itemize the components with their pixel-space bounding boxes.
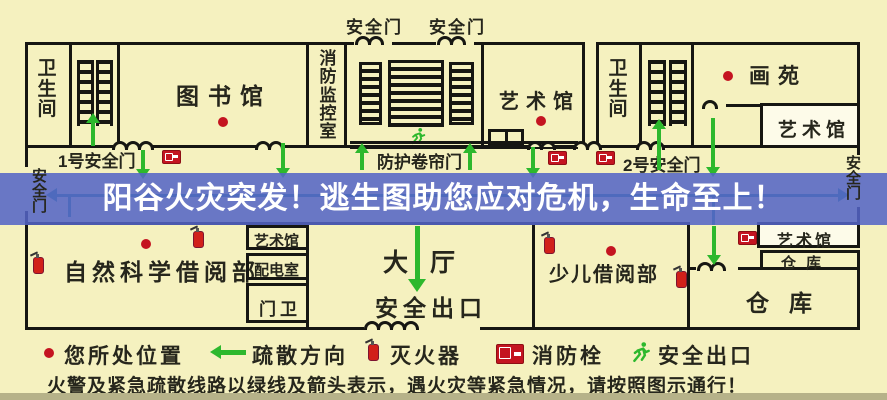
evac-arrow-up (91, 122, 95, 146)
room-label: 卫生间 (607, 59, 629, 121)
legend-label: 安全出口 (658, 340, 754, 370)
room-library: 图书馆 (117, 42, 309, 148)
west-exit-label: 安全门 (28, 168, 49, 213)
room-art-top: 艺术馆 (481, 42, 585, 148)
legend-row: 您所处位置 疏散方向 灭火器 消防栓 安全出口 (38, 340, 868, 366)
room-warehouse-big: 仓库 (687, 267, 860, 330)
evac-arrow-down (711, 118, 715, 168)
room-fire-monitor: 消防监控室 (306, 42, 347, 148)
fire-hydrant-icon (496, 344, 524, 364)
gate1-label: 1号安全门 (58, 147, 135, 172)
wall-segment (25, 145, 28, 167)
room-gate-guard: 门卫 (246, 283, 309, 323)
location-dot (723, 71, 733, 81)
room-label: 少儿借阅部 (549, 258, 659, 287)
fire-hydrant-icon (596, 151, 615, 165)
bookshelf (359, 62, 382, 125)
fire-hydrant-icon (548, 151, 567, 165)
headline-banner: 阳谷火灾突发！逃生图助您应对危机，生命至上！ (0, 173, 887, 225)
fire-hydrant-icon (162, 150, 181, 164)
running-man-icon (630, 341, 652, 363)
legend-label: 您所处位置 (64, 340, 184, 370)
bookshelf (388, 60, 444, 127)
main-exit-door (364, 321, 416, 330)
evac-arrow-down (712, 226, 716, 256)
stair-flight (648, 60, 666, 126)
evac-arrow-up (360, 152, 364, 170)
hall-exit-label: 安全出口 (375, 289, 487, 323)
bottom-strip (0, 393, 887, 400)
door-label: 安全门 (346, 13, 403, 38)
room-warehouse-small: 仓库 (760, 250, 860, 270)
evac-arrow-down (141, 150, 145, 170)
fire-extinguisher-icon (368, 344, 379, 361)
room-label: 仓库 (746, 284, 832, 318)
wall-segment (687, 222, 690, 270)
room-label: 艺术馆 (499, 85, 580, 114)
room-hall: 大厅 安全出口 (306, 222, 535, 330)
location-dot (536, 116, 546, 126)
corridor-door (255, 141, 281, 150)
fire-extinguisher-icon (193, 231, 204, 248)
room-label: 卫生间 (36, 59, 58, 121)
location-dot (218, 117, 228, 127)
room-label: 艺术馆 (254, 230, 299, 251)
evac-arrow-down (531, 147, 535, 169)
evac-arrow-up (468, 152, 472, 170)
door-label: 安全门 (429, 13, 486, 38)
legend-label: 消防栓 (532, 340, 604, 370)
room-label: 门卫 (259, 295, 301, 320)
room-label: 消防监控室 (317, 50, 339, 142)
fire-extinguisher-icon (544, 237, 555, 254)
evac-arrow-up (657, 128, 661, 170)
room-label: 自然科学借阅部 (64, 253, 260, 287)
stairs-right (639, 42, 694, 148)
legend-label: 疏散方向 (252, 340, 348, 370)
room-label: 艺术馆 (777, 227, 834, 251)
room-central-stacks (344, 42, 484, 148)
stair-flight (669, 60, 687, 126)
room-label: 艺术馆 (778, 115, 850, 142)
location-dot (141, 239, 151, 249)
fire-hydrant-icon (738, 231, 757, 245)
room-children-reading: 少儿借阅部 (532, 222, 690, 330)
fire-extinguisher-icon (33, 257, 44, 274)
room-art-mid: 艺术馆 (246, 225, 309, 250)
room-label: 配电室 (254, 259, 299, 280)
room-label: 仓库 (781, 252, 831, 273)
evacuation-arrow-icon (220, 350, 246, 355)
evac-arrow-main-exit (415, 226, 420, 280)
room-power: 配电室 (246, 253, 309, 280)
evac-arrow-down (281, 143, 285, 169)
door-huayuan (702, 100, 715, 109)
room-label: 画苑 (749, 60, 807, 90)
east-exit-label: 安全门 (842, 155, 863, 200)
wall-segment (857, 145, 860, 155)
room-label: 大厅 (383, 243, 477, 279)
room-wc-right: 卫生间 (596, 42, 642, 148)
room-art-bottom-right: 艺术馆 (757, 222, 860, 248)
legend-label: 灭火器 (390, 340, 462, 370)
bookshelf (449, 62, 474, 125)
location-dot (606, 246, 616, 256)
room-label: 图书馆 (176, 77, 272, 111)
room-art-top-right: 艺术馆 (760, 103, 860, 148)
fire-extinguisher-icon (676, 271, 687, 288)
room-wc-left: 卫生间 (25, 42, 72, 148)
location-dot-icon (44, 348, 54, 358)
shutter-label: 防护卷帘门 (377, 148, 462, 173)
